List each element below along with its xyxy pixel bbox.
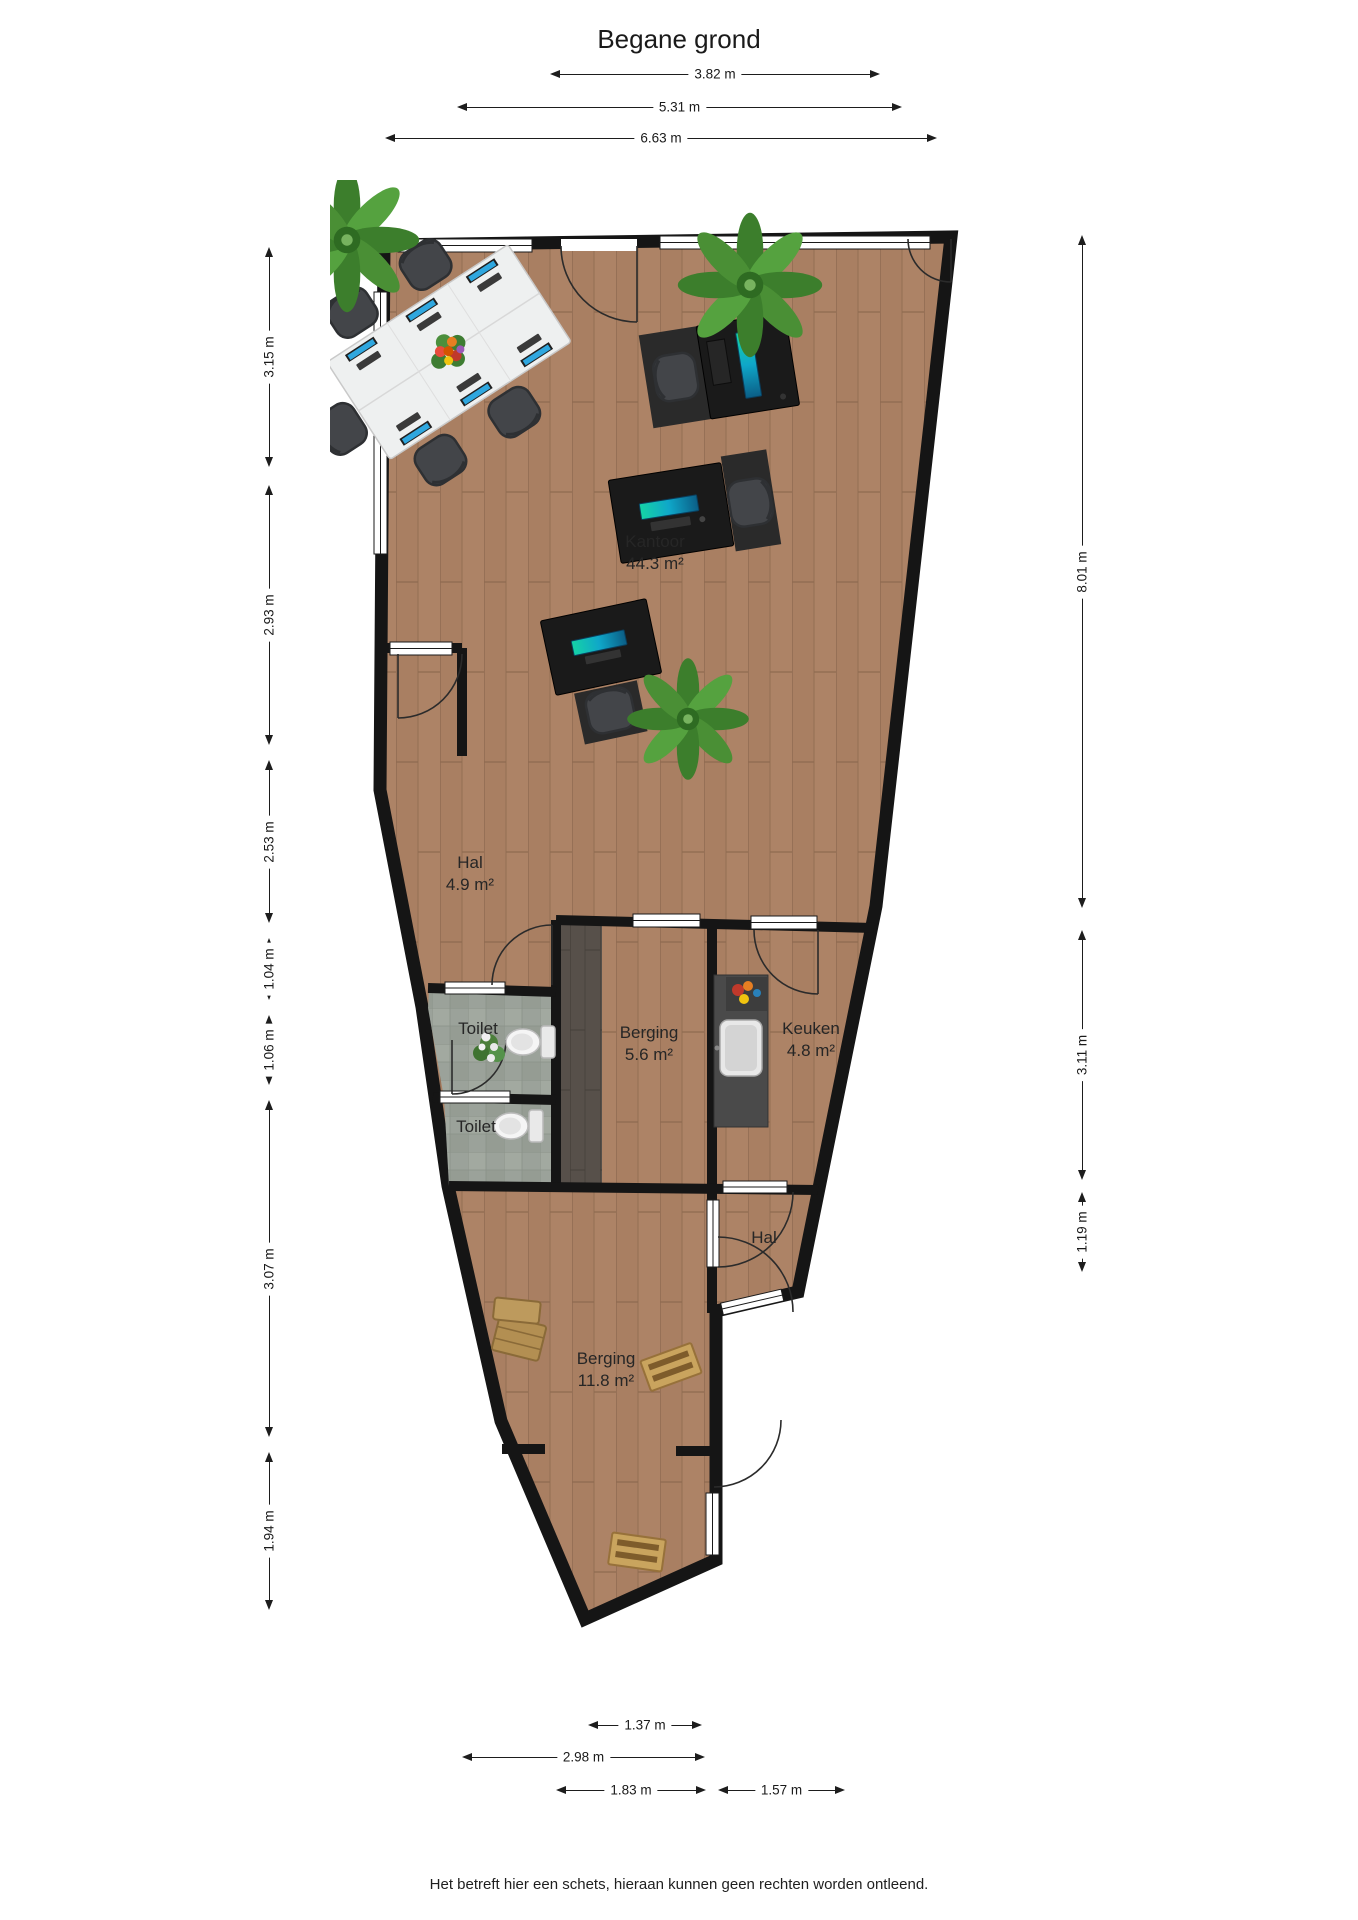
window xyxy=(751,916,817,929)
arrow-up-icon xyxy=(265,760,273,770)
dimension-top-2: 5.31 m xyxy=(457,99,902,115)
dimension-bottom-3: 1.83 m xyxy=(556,1782,706,1798)
dimension-bottom-4: 1.57 m xyxy=(718,1782,845,1798)
arrow-up-icon xyxy=(265,247,273,257)
dimension-left-6: 3.07 m xyxy=(261,1100,277,1437)
dimension-top-3: 6.63 m xyxy=(385,130,937,146)
arrow-down-icon xyxy=(265,1427,273,1437)
arrow-up-icon xyxy=(1078,930,1086,940)
room-label-hal-1: Hal 4.9 m² xyxy=(446,852,494,897)
dimension-right-3: 1.19 m xyxy=(1074,1192,1090,1272)
window xyxy=(390,642,452,655)
dimension-left-4: 1.04 m xyxy=(261,938,277,1000)
window xyxy=(707,1200,719,1267)
kitchen-counter xyxy=(714,975,768,1127)
disclaimer-text: Het betreft hier een schets, hieraan kun… xyxy=(0,1876,1358,1893)
floorplan-page: Begane grond xyxy=(0,0,1358,1920)
window xyxy=(633,914,700,927)
arrow-right-icon xyxy=(870,70,880,78)
arrow-up-icon xyxy=(265,1100,273,1110)
arrow-left-icon xyxy=(457,103,467,111)
arrow-left-icon xyxy=(556,1786,566,1794)
dimension-right-2: 3.11 m xyxy=(1074,930,1090,1180)
room-label-hal-2: Hal xyxy=(751,1227,777,1249)
arrow-up-icon xyxy=(1078,1192,1086,1202)
room-label-berging-1: Berging 5.6 m² xyxy=(620,1022,679,1067)
arrow-right-icon xyxy=(696,1786,706,1794)
arrow-left-icon xyxy=(550,70,560,78)
arrow-down-icon xyxy=(265,735,273,745)
arrow-down-icon xyxy=(1078,1262,1086,1272)
door-opening-top xyxy=(561,239,637,251)
dimension-left-2: 2.93 m xyxy=(261,485,277,745)
arrow-right-icon xyxy=(892,103,902,111)
arrow-down-icon xyxy=(1078,898,1086,908)
toilet-fixture-2 xyxy=(494,1110,543,1142)
dimension-left-7: 1.94 m xyxy=(261,1452,277,1610)
dimension-left-1: 3.15 m xyxy=(261,247,277,467)
dimension-left-5: 1.06 m xyxy=(261,1015,277,1085)
room-label-toilet-1: Toilet xyxy=(458,1018,498,1040)
dimension-bottom-2: 2.98 m xyxy=(462,1749,705,1765)
arrow-up-icon xyxy=(265,485,273,495)
dimension-top-1: 3.82 m xyxy=(550,66,880,82)
arrow-right-icon xyxy=(835,1786,845,1794)
page-title: Begane grond xyxy=(0,24,1358,55)
floorplan-canvas xyxy=(330,180,990,1650)
plant-2 xyxy=(678,213,822,357)
arrow-up-icon xyxy=(265,1452,273,1462)
plant-3 xyxy=(627,658,749,780)
arrow-down-icon xyxy=(1078,1170,1086,1180)
room-label-kantoor: Kantoor 44.3 m² xyxy=(625,531,685,576)
window xyxy=(445,982,505,994)
room-label-berging-2: Berging 11.8 m² xyxy=(577,1348,636,1393)
arrow-right-icon xyxy=(927,134,937,142)
room-label-toilet-2: Toilet xyxy=(456,1116,496,1138)
arrow-left-icon xyxy=(462,1753,472,1761)
arrow-right-icon xyxy=(695,1753,705,1761)
window xyxy=(440,1091,510,1103)
arrow-left-icon xyxy=(718,1786,728,1794)
arrow-down-icon xyxy=(265,1600,273,1610)
arrow-left-icon xyxy=(588,1721,598,1729)
window xyxy=(706,1493,719,1555)
toilet-fixture-1 xyxy=(506,1026,555,1058)
dimension-left-3: 2.53 m xyxy=(261,760,277,923)
arrow-left-icon xyxy=(385,134,395,142)
dark-plank-strip xyxy=(556,920,602,1188)
room-label-keuken: Keuken 4.8 m² xyxy=(782,1018,840,1063)
dimension-bottom-1: 1.37 m xyxy=(588,1717,702,1733)
arrow-up-icon xyxy=(1078,235,1086,245)
sign-pallet-2 xyxy=(608,1532,666,1571)
dimension-right-1: 8.01 m xyxy=(1074,235,1090,908)
window xyxy=(723,1181,787,1193)
arrow-down-icon xyxy=(265,457,273,467)
arrow-down-icon xyxy=(265,913,273,923)
arrow-right-icon xyxy=(692,1721,702,1729)
